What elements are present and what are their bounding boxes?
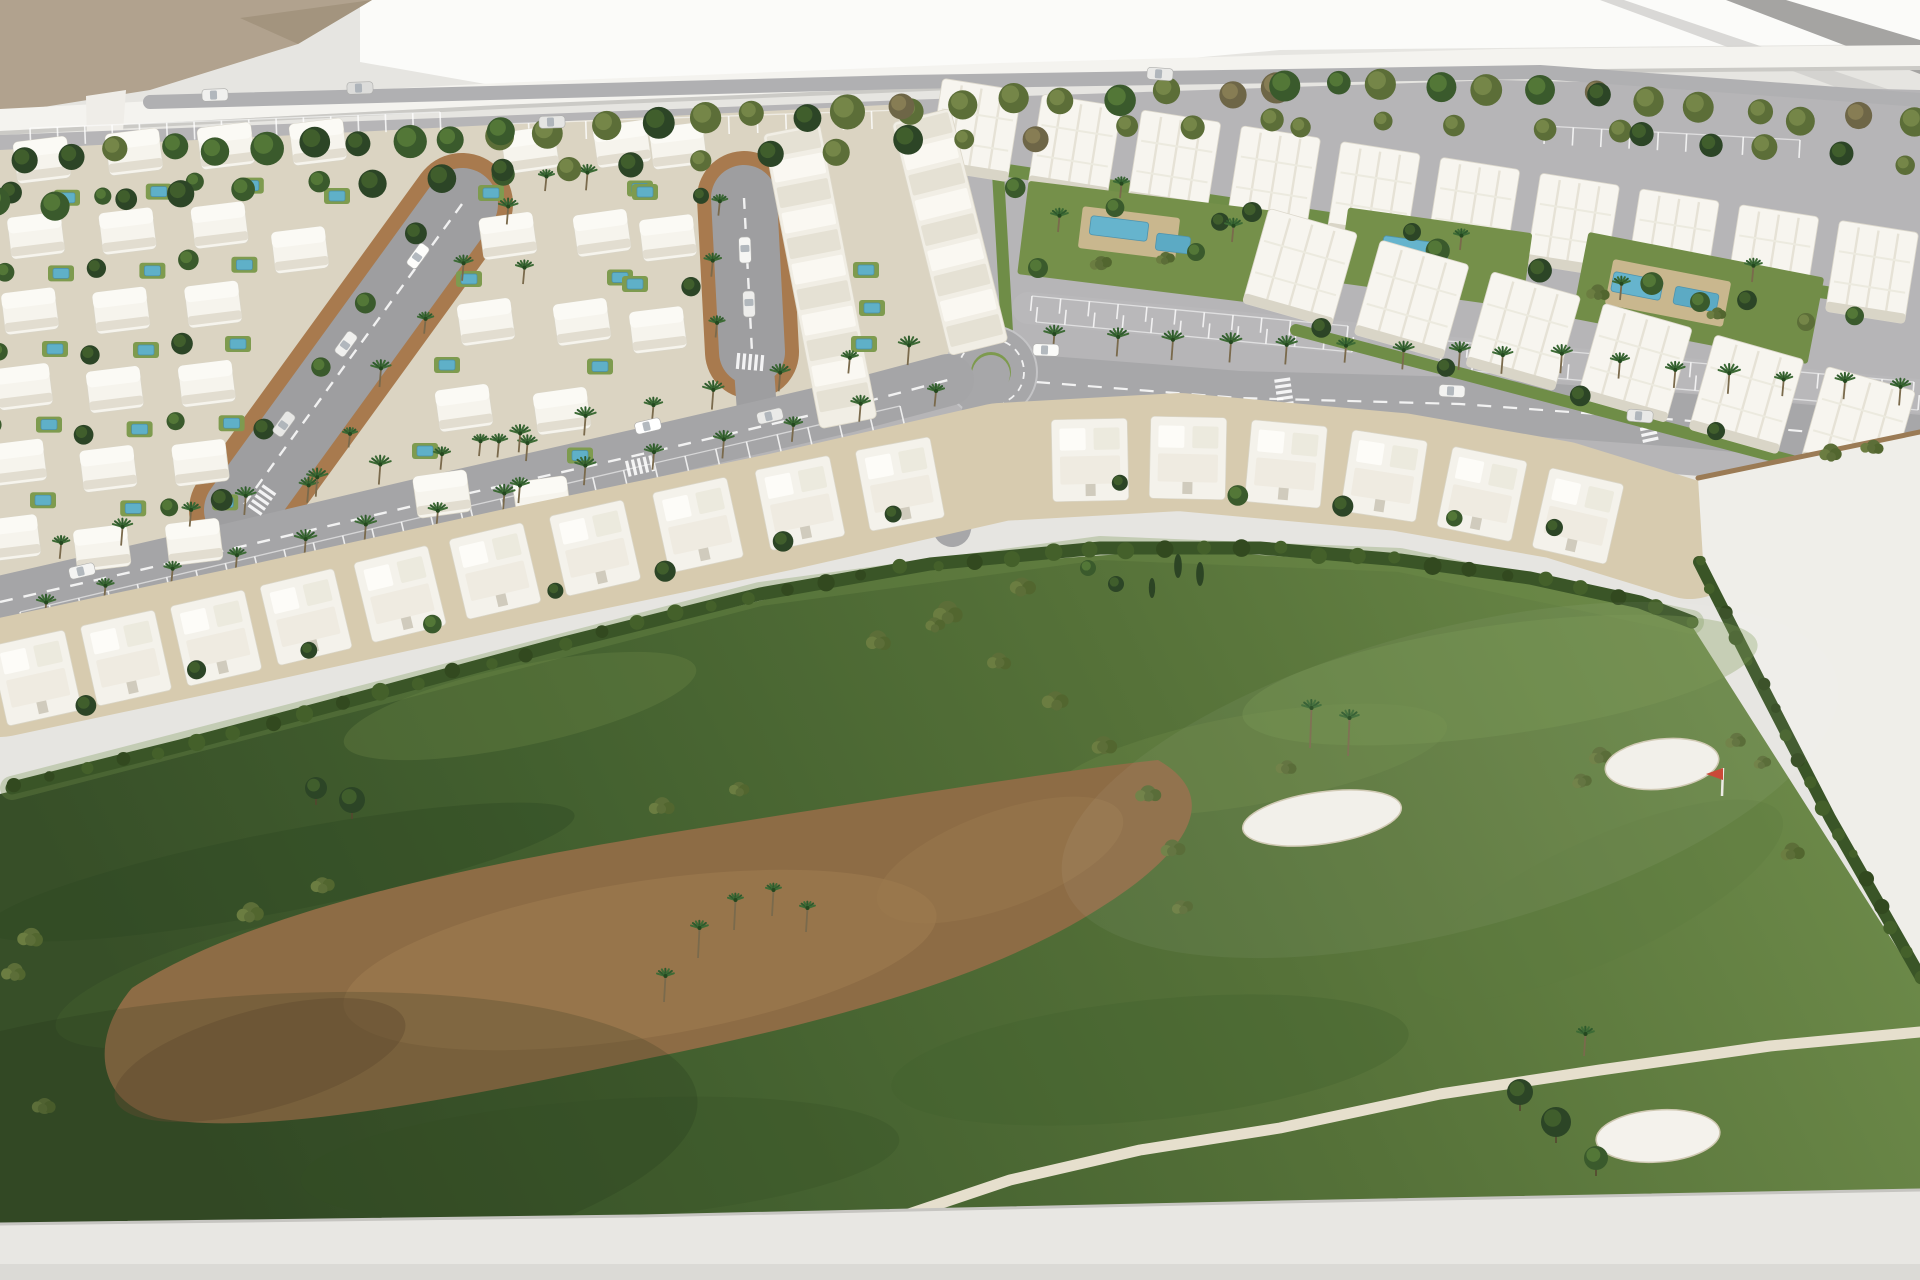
roof-terrace [1158,425,1184,448]
palm-crown [497,439,501,443]
tree-highlight [82,347,93,358]
tree-highlight [1530,260,1544,274]
pool-water [230,339,246,349]
palm-crown [778,371,782,375]
scene-root [0,0,1920,1280]
tree-highlight [1572,387,1584,399]
townhouse-lower [1158,453,1219,482]
palm-crown [304,537,308,541]
hedge-bump [934,561,944,571]
hedge-bump [1156,540,1173,557]
palm-crown [652,450,656,454]
pool-water [627,279,643,289]
tree-highlight [313,359,324,370]
palm-crown [315,475,319,479]
pool-water [41,420,57,430]
tree-highlight [1007,179,1019,191]
tree-highlight [760,143,775,158]
tree-highlight [490,119,506,135]
pool-water [138,345,154,355]
palm-crown [44,601,48,605]
palm-crown [651,403,655,407]
palm-crown [1584,1032,1588,1036]
tree-highlight [1189,244,1199,254]
car-glass [355,83,362,92]
tree-highlight [1847,308,1858,319]
bush-icon [1051,700,1062,711]
tree-highlight [165,135,180,150]
hedge-bump [1883,921,1897,935]
tree-highlight [78,697,90,709]
rect [0,1264,1920,1280]
palm-crown [586,171,590,175]
bush-icon [1714,312,1721,319]
tree-highlight [234,179,248,193]
tree-highlight [1903,110,1920,127]
palm-crown [934,389,938,393]
palm-crown [734,898,738,902]
hedge-bump [1832,828,1845,841]
car [743,291,756,317]
hedge-bump [667,604,683,620]
tree-highlight [1897,157,1908,168]
hedge-bump [1004,551,1020,567]
tree-highlight [168,414,179,425]
townhouse-lower [1254,457,1316,490]
hedge-bump [1502,570,1513,581]
tree-highlight [1799,314,1809,324]
stall-line [440,112,441,130]
villa [0,363,53,411]
tree-highlight [1536,120,1549,133]
tree [1108,576,1124,592]
hedge-bump [225,726,240,741]
stall-line [586,121,587,139]
model-photo [0,0,1920,1280]
hedge-bump [336,696,350,710]
tree [1028,258,1048,278]
hedge-bump [1901,946,1913,958]
tree-highlight [1025,128,1040,143]
tree-highlight [1636,89,1654,107]
tree-highlight [951,93,968,110]
tree-highlight [254,134,273,153]
palm-crown [1618,359,1622,363]
tree-highlight [1118,117,1131,130]
bush-icon [1015,586,1026,597]
pool-water [417,446,433,456]
palm-crown [436,509,440,513]
tree-highlight [1528,77,1545,94]
tree-highlight [204,140,220,156]
villa [171,439,230,487]
tree-highlight [407,224,420,237]
stall-line [1601,129,1602,147]
tree-highlight [1686,94,1704,112]
pool-1b [1155,233,1191,254]
hedge-bump [1815,800,1830,815]
hedge-bump [1704,583,1715,594]
palm-crown [189,508,193,512]
hedge-bump [781,583,793,595]
pool-water [224,418,240,428]
hedge-bump [1274,541,1287,554]
tree-highlight [1643,274,1656,287]
hedge-bump [1539,572,1553,586]
palm-crown [244,494,248,498]
pool-water [483,188,499,198]
tree-highlight [1230,487,1242,499]
villa [165,518,224,566]
palm-crown [1344,344,1348,348]
villa [184,280,243,328]
stall-line [1799,140,1800,158]
bush-icon [318,884,328,894]
tree-highlight [118,190,131,203]
palm-crown [859,402,863,406]
palm-crown [1673,368,1677,372]
palm-crown [848,356,852,360]
hedge-bump [266,716,281,731]
tree-highlight [1789,109,1806,126]
car [1033,344,1059,357]
pool-water [47,344,63,354]
tree-highlight [1428,240,1442,254]
bush-icon [244,912,255,923]
roof-terrace [1257,429,1285,453]
tree-highlight [170,182,186,198]
tree-highlight [162,500,172,510]
palm-crown [664,974,668,978]
tree-highlight [43,194,60,211]
bush-icon [874,638,885,649]
pool-water [132,424,148,434]
tree [1690,292,1710,312]
stall-line [786,114,787,132]
tree-highlight [342,789,357,804]
tree-highlight [549,584,558,593]
tree-highlight [1692,294,1704,306]
tree-highlight [1113,476,1122,485]
tree-highlight [1405,224,1415,234]
townhouse [1244,420,1327,509]
tree-highlight [1510,1081,1525,1096]
palm-crown [526,441,530,445]
tree-highlight [1445,116,1458,129]
bush-icon [995,658,1005,668]
tree-highlight [1002,85,1020,103]
roof-terrace [1059,428,1085,451]
pool-water [864,303,880,313]
tree-highlight [439,128,455,144]
car [1439,384,1466,397]
car [202,89,228,102]
car [347,82,373,95]
hedge-bump [188,734,205,751]
tree-highlight [255,420,267,432]
tree-highlight [891,96,906,111]
hedge-bump [1696,556,1706,566]
hedge-bump [486,658,497,669]
roof-terrace [1356,440,1385,466]
tree [1187,243,1205,261]
pool-water [329,191,345,201]
tree-highlight [213,491,226,504]
hedge-bump [44,771,54,781]
tree-highlight [1292,119,1304,131]
hedge-bump [1081,542,1097,558]
bush-icon [931,624,939,632]
stall-line [729,116,730,134]
roof-terrace [1291,432,1319,456]
bush-icon [1826,452,1836,462]
tree-highlight [105,138,120,153]
villa [92,286,151,334]
stall-line [85,126,86,144]
cypress-tree [1196,562,1204,586]
palm-crown [1052,332,1056,336]
pool-water [439,360,455,370]
bush-icon [736,788,744,796]
tree-highlight [1334,497,1346,509]
private-pool [853,262,879,278]
hedge-bump [445,663,461,679]
tree-highlight [1439,360,1450,371]
tree-highlight [683,279,694,290]
hedge-bump [117,752,131,766]
tree-highlight [1049,90,1064,105]
villa [0,438,47,486]
pool-water [151,187,167,197]
tree-highlight [1107,200,1118,211]
tree-highlight [425,616,436,627]
palm-crown [506,205,510,209]
roof-terrace [1093,427,1119,450]
villa [456,297,515,346]
pool-water [856,339,872,349]
tree-highlight [695,189,704,198]
palm-crown [348,432,352,436]
tree-highlight [302,643,312,653]
villa [177,359,236,407]
tree-highlight [1848,104,1864,120]
hedge-bump [152,747,164,759]
villa [1,287,60,335]
palm-crown [103,584,107,588]
hedge-bump [296,705,313,722]
tree-highlight [361,172,377,188]
tree-highlight [1611,121,1624,134]
car-glass [1447,386,1454,395]
palm-crown [1560,352,1564,356]
roof-terrace [1192,426,1218,449]
bush-icon [1594,292,1602,300]
car [739,237,752,263]
tree-highlight [96,189,106,199]
villa [412,469,471,518]
stall-line [194,122,195,140]
palm-crown [1232,224,1236,228]
tree-highlight [1632,124,1646,138]
villa [271,226,330,274]
palm-crown [1120,182,1124,186]
tree-highlight [1474,77,1492,95]
tree-highlight [1156,79,1172,95]
tree-highlight [180,251,192,263]
hedge-bump [596,625,609,638]
tree-highlight [430,167,447,184]
townhouse [1340,430,1428,523]
palm-crown [379,366,383,370]
palm-crown [772,888,776,892]
stall-line [1657,132,1658,150]
stall-line [1686,134,1687,152]
palm-crown [523,266,527,270]
pool-water [35,495,51,505]
tree-highlight [357,294,369,306]
hedge-bump [1424,557,1442,575]
tree-highlight [621,154,636,169]
tree-highlight [886,507,896,517]
tree-highlight [775,533,787,545]
tree-highlight [89,260,100,271]
palm-crown [711,259,715,263]
hedge-bump [892,559,907,574]
townhouse-entry [1182,482,1192,494]
villa [0,514,41,562]
tree-highlight [1368,71,1386,89]
car [539,116,565,129]
tree-highlight [307,779,320,792]
hedge-bump [630,615,645,630]
palm-crown [121,525,125,529]
pool-water [144,266,160,276]
palm-crown [1727,371,1731,375]
car [1147,67,1174,81]
palm-crown [171,567,175,571]
car-glass [744,299,753,306]
car-glass [1155,69,1163,78]
palm-crown [502,492,506,496]
stall-line [1572,128,1573,146]
villa [552,297,611,346]
palm-crown [584,414,588,418]
palm-crown [1752,264,1756,268]
tree-highlight [741,103,756,118]
tree-highlight [61,146,76,161]
tree-highlight [1213,214,1223,224]
tree-highlight [1082,561,1091,570]
tree-highlight [825,141,841,157]
tree-highlight [559,159,573,173]
tree-highlight [1702,135,1716,149]
tree-highlight [1547,520,1557,530]
tree-highlight [302,129,320,147]
pool-water [637,187,653,197]
stall-line [276,118,277,136]
palm-crown [518,431,522,435]
hedge-bump [81,762,93,774]
palm-crown [378,463,382,467]
private-pool [859,300,885,316]
tree-highlight [1832,143,1846,157]
tree-highlight [188,174,199,185]
bush-icon [10,971,20,981]
tree-highlight [595,113,612,130]
tree [1797,313,1815,331]
palm-crown [715,321,719,325]
palm-crown [1899,385,1903,389]
palm-crown [1458,349,1462,353]
tree-highlight [693,105,711,123]
tree-highlight [494,161,507,174]
villa [190,201,249,249]
tree-highlight [1183,117,1197,131]
hedge-bump [706,601,717,612]
tree-highlight [796,106,812,122]
palm-crown [711,388,715,392]
bush-icon [1097,741,1108,752]
bush-icon [25,935,36,946]
tree-highlight [1754,136,1769,151]
palm-crown [518,484,522,488]
tree-highlight [397,128,416,147]
cypress-tree [1149,578,1155,598]
tree [1080,560,1096,576]
hedge-bump [7,778,21,792]
stall-line [385,114,386,132]
scene-svg [0,0,1920,1280]
hedge-bump [559,638,572,651]
car-glass [740,245,749,252]
roof-terrace [1389,445,1418,471]
hedge-bump [1233,539,1251,557]
tree-highlight [1030,260,1042,272]
stall-line [871,111,872,129]
tree-highlight [76,426,87,437]
palm-crown [424,317,428,321]
palm-crown [440,452,444,456]
stall-line [358,115,359,133]
hedge-bump [855,570,866,581]
bush-icon [1707,311,1715,319]
car [1627,409,1654,423]
hedge-bump [1311,548,1327,564]
palm-crown [1171,338,1175,342]
palm-crown [1460,234,1464,238]
bush-icon [1867,444,1875,452]
palm-crown [718,199,722,203]
townhouse-entry [1374,499,1386,512]
pool-water [53,268,69,278]
townhouse [1149,416,1227,500]
pool-water [592,362,608,372]
townhouse-lower [1060,455,1121,484]
bush-icon [656,804,666,814]
hedge-bump [1874,899,1889,914]
tree-highlight [1313,320,1324,331]
palm-crown [1058,214,1062,218]
tree-highlight [1272,73,1290,91]
villa [85,365,144,413]
hedge-bump [1388,551,1400,563]
tree [1242,202,1262,222]
tree-highlight [1448,511,1458,521]
tree-highlight [1586,1148,1600,1162]
palm-crown [1782,378,1786,382]
tree-highlight [1110,577,1119,586]
palm-crown [545,174,549,178]
